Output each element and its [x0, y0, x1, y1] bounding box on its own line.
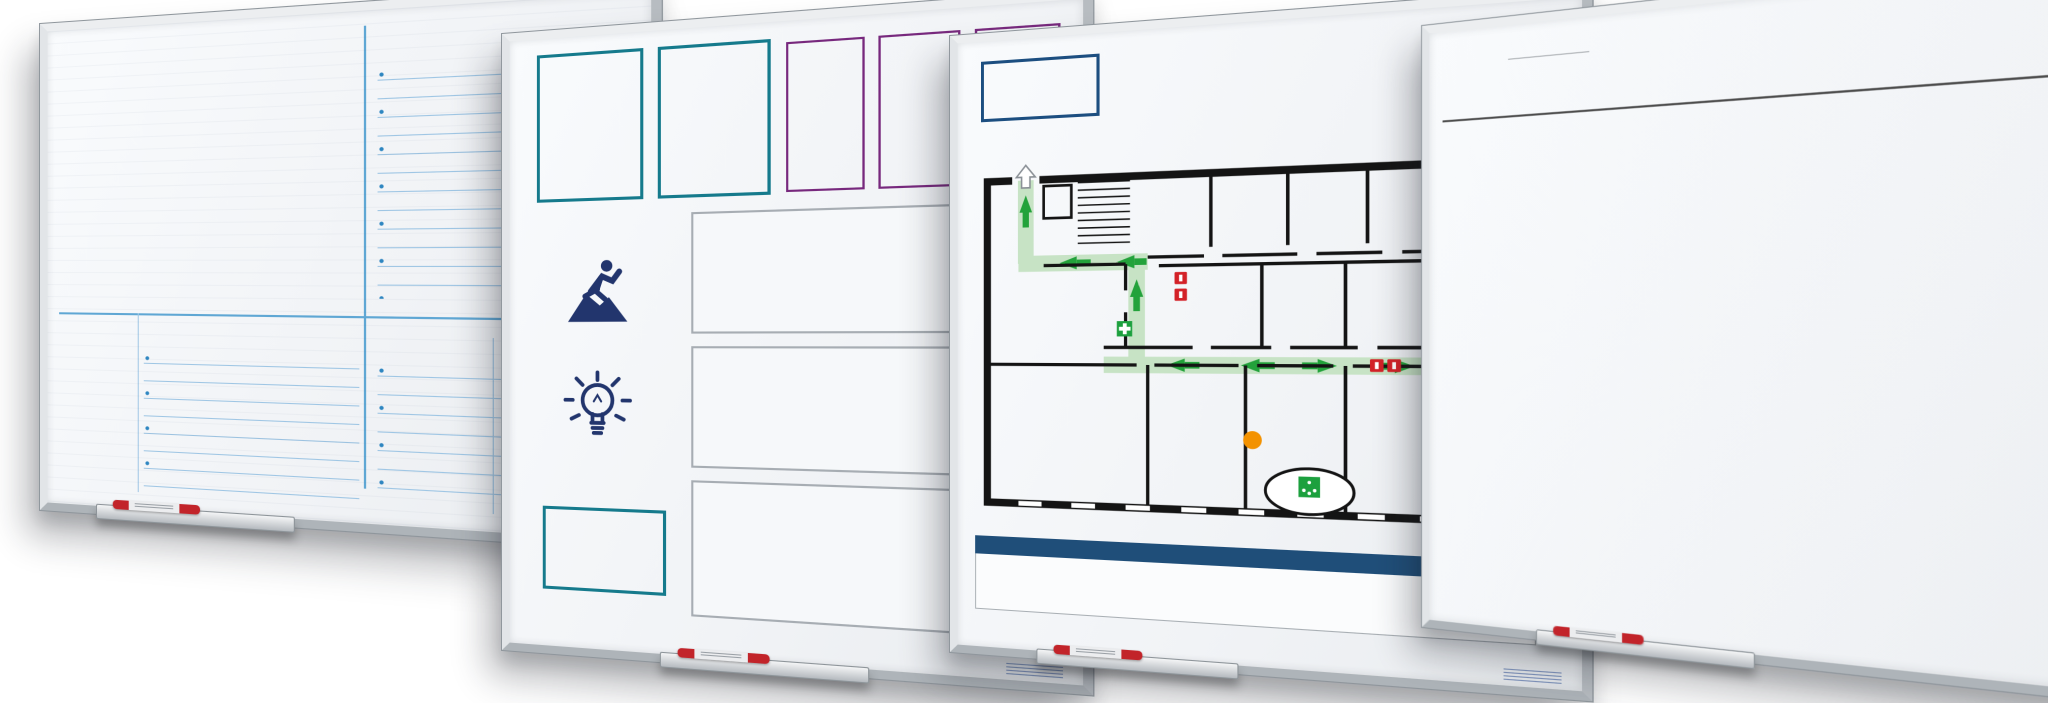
tpi-box-label [818, 31, 831, 32]
tpi-box-label [912, 25, 926, 26]
manufacturer-print [1504, 668, 1562, 684]
week-fill-in-line [1508, 51, 1589, 60]
logo-box [981, 54, 1100, 123]
runner-icon [563, 255, 632, 337]
product-photo-stage [0, 0, 2048, 703]
tpi-box [878, 30, 960, 189]
successen-ruled-lines [144, 346, 360, 499]
smiley-column [65, 338, 128, 339]
afdelingsoverstijgend-subheading [516, 484, 683, 490]
column-line [138, 313, 139, 492]
team-box-label [583, 45, 595, 46]
principle-tiles-grid [63, 33, 348, 50]
tpi-box [786, 37, 865, 192]
week-planner-grid [1443, 57, 2048, 123]
agenda-box [658, 39, 771, 199]
meeting-point-icon [1265, 468, 1354, 517]
a3-management-heading [516, 462, 683, 467]
lightbulb-icon [561, 364, 636, 454]
week-planner-board [1422, 0, 2048, 703]
question-heading [523, 213, 674, 218]
board4-surface [1429, 0, 2048, 703]
divider-line [364, 26, 366, 489]
tpi-box-label [1010, 18, 1025, 19]
team-heading [69, 320, 134, 321]
agenda-box-label [707, 36, 720, 37]
logo-box [543, 506, 666, 596]
team-box [537, 48, 643, 203]
